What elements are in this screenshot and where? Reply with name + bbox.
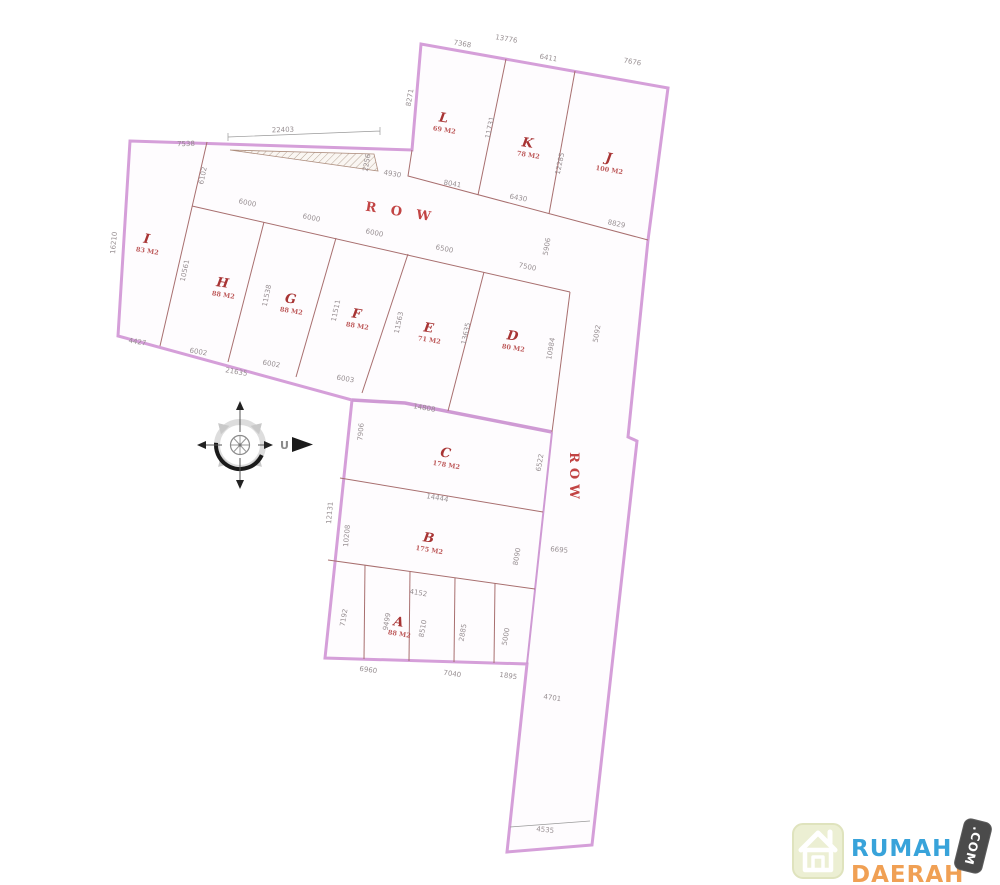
brand-tld-tag: .COM <box>953 817 993 874</box>
brand-name-bottom: DAERAH <box>851 862 964 885</box>
dimension-label-6960: 6960 <box>359 665 378 675</box>
dimension-label-22403: 22403 <box>272 126 295 135</box>
compass-rose: U <box>197 401 313 489</box>
dimension-label-7906: 7906 <box>356 422 366 441</box>
dimension-label-6695: 6695 <box>550 545 568 555</box>
dimension-label-7676: 7676 <box>623 57 642 68</box>
dimension-label-1895: 1895 <box>499 671 518 681</box>
dimension-label-8271: 8271 <box>405 88 416 107</box>
dimension-label-6411: 6411 <box>539 53 558 64</box>
compass-center-dot <box>238 443 241 446</box>
dimension-label-7368: 7368 <box>453 39 472 50</box>
site-outer-boundary <box>118 44 668 852</box>
site-plan-drawing: R O W ROW L69 M2K78 M2J100 M2I83 M2H88 M… <box>0 0 1000 885</box>
dimension-label-12131: 12131 <box>325 501 335 524</box>
north-arrow-icon <box>292 437 313 452</box>
brand-logo[interactable]: RUMAH DAERAH .COM <box>793 817 993 885</box>
dimension-label-16210: 16210 <box>109 231 119 254</box>
north-label: U <box>280 439 289 452</box>
dimension-label-7538: 7538 <box>177 140 195 148</box>
dimension-label-13776: 13776 <box>495 33 519 45</box>
dimension-label-7040: 7040 <box>443 669 462 679</box>
dimension-label-4427: 4427 <box>128 337 147 348</box>
road-label-vertical: ROW <box>566 452 581 504</box>
site-plan-canvas: R O W ROW L69 M2K78 M2J100 M2I83 M2H88 M… <box>0 0 1000 885</box>
brand-name-top: RUMAH <box>851 836 952 862</box>
